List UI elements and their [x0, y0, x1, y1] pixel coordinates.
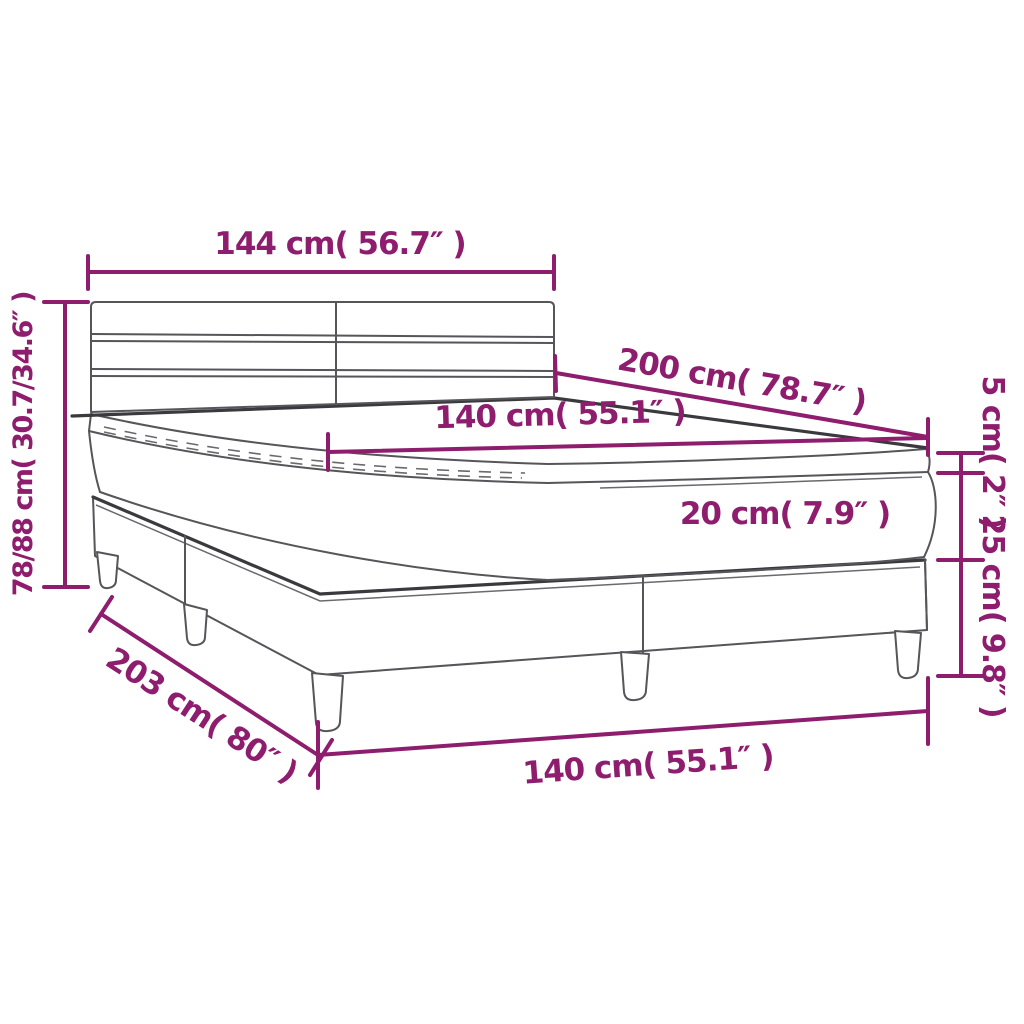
mattress-right-bulge: [924, 472, 936, 557]
dim-base-height-label: 25 cm( 9.8″ ): [975, 514, 1010, 717]
bed-legs: [97, 552, 921, 731]
dim-right-stack: 5 cm( 2″ ) 25 cm( 9.8″ ): [938, 376, 1010, 718]
dim-total-height-label: 78/88 cm( 30.7/34.6″ ): [8, 292, 39, 596]
headboard-slat-line: [91, 376, 554, 377]
dim-mattress-width-bottom-label: 140 cm( 55.1″ ): [521, 738, 774, 791]
mattress-left-edge: [89, 431, 100, 492]
dim-topper-thickness-label: 5 cm( 2″ ): [975, 376, 1010, 529]
dim-total-height: 78/88 cm( 30.7/34.6″ ): [8, 292, 88, 596]
bed-dimension-diagram: 144 cm( 56.7″ ) 78/88 cm( 30.7/34.6″ ) 2…: [0, 0, 1024, 1024]
dim-length-bottom: 203 cm( 80″ ): [90, 597, 332, 791]
mattress-top-seam: [600, 477, 922, 488]
headboard: [91, 302, 554, 412]
dim-mattress-width-bottom: 140 cm( 55.1″ ): [318, 678, 928, 792]
dim-mattress-width-top-label: 140 cm( 55.1″ ): [434, 394, 686, 437]
bed-leg: [895, 631, 921, 678]
diagram-canvas: 144 cm( 56.7″ ) 78/88 cm( 30.7/34.6″ ) 2…: [0, 0, 1024, 1024]
headboard-face: [91, 302, 554, 412]
bed-leg: [97, 552, 118, 588]
dim-length-bottom-label: 203 cm( 80″ ): [99, 641, 303, 791]
dim-mattress-thickness-label: 20 cm( 7.9″ ): [680, 496, 890, 532]
dim-headboard-width-label: 144 cm( 56.7″ ): [214, 226, 465, 262]
dim-headboard-width: 144 cm( 56.7″ ): [88, 226, 554, 289]
bed-leg: [621, 652, 649, 700]
bed-leg: [184, 604, 207, 645]
base-right-edge: [925, 560, 927, 630]
